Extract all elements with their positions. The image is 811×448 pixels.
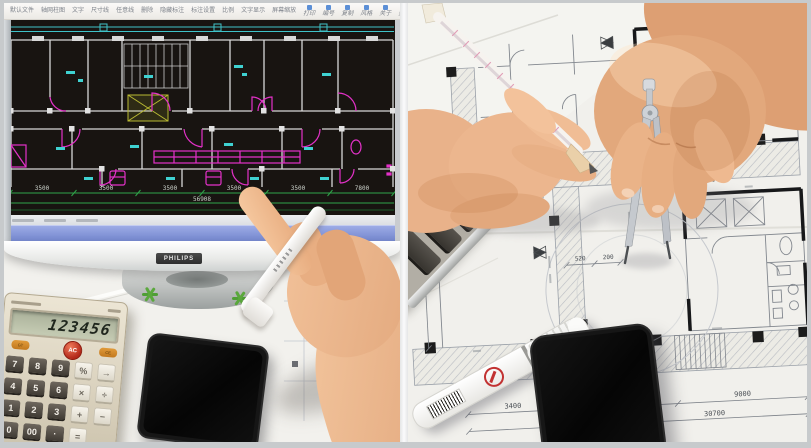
cad-menu-item: 文字显示 (241, 8, 265, 14)
phone-screen (535, 329, 661, 442)
cad-menu-item: 标注设置 (191, 8, 215, 14)
calculator-keypad: 7 8 9 % → 4 5 6 × ÷ 1 2 3 + − 0 00 · = (4, 355, 116, 442)
calculator-key: → (97, 363, 117, 383)
calculator: 123456 GT AC CE 7 8 9 % → 4 5 6 × ÷ 1 2 … (4, 292, 129, 442)
right-photo-blueprint-desk: 3400 9000 30700 520 200 7 8 (408, 3, 807, 442)
toolbar-icon (364, 5, 369, 10)
toolbar-icon (383, 5, 388, 10)
dim-total-label: 56908 (193, 196, 211, 203)
smartphone (528, 322, 667, 442)
cad-menu-item: 轴网柱图 (41, 8, 65, 14)
calculator-key-ce: CE (99, 347, 118, 358)
calculator-key: − (93, 407, 113, 427)
pointing-hand (232, 171, 400, 442)
elevator-shaft (128, 95, 168, 121)
dim-label: 520 (575, 255, 587, 263)
calculator-key: 3 (47, 403, 66, 422)
left-photo-cad-workstation: 默认文件 轴网柱图 文字 尺寸线 任意线 删除 隐藏标注 标注设置 比例 文字显… (4, 3, 400, 442)
monitor-left-edge (4, 19, 11, 241)
cad-menu-item-label: 资料 (398, 11, 400, 17)
calculator-key: 00 (22, 423, 41, 442)
cad-menu-item: 资料 (398, 5, 400, 17)
calculator-key: · (45, 425, 64, 442)
calculator-key: 0 (4, 421, 19, 440)
photo-divider (400, 3, 408, 442)
dim-total-label: 30700 (704, 409, 725, 418)
calculator-key-gt: GT (11, 340, 30, 351)
calculator-key: 8 (28, 357, 47, 376)
calculator-key: = (68, 427, 88, 442)
cad-menu-item: 打印 (303, 5, 315, 17)
calculator-key: 7 (5, 355, 24, 374)
calculator-key: 1 (4, 399, 21, 418)
toolbar-icon (307, 5, 312, 10)
cad-menu-item-label: 编号 (322, 11, 334, 17)
cad-menu-item: 风格 (360, 5, 372, 17)
toolbar-icon (326, 5, 331, 10)
cad-menu-item: 关于 (379, 5, 391, 17)
cad-menu-item: 复制 (341, 5, 353, 17)
calculator-key: × (72, 383, 92, 403)
plant-leaves (142, 293, 158, 296)
cad-menu-item-label: 打印 (303, 11, 315, 17)
calculator-key: 4 (4, 377, 23, 396)
philips-logo: PHILIPS (156, 253, 202, 264)
cad-menu-item: 尺寸线 (91, 8, 109, 14)
calculator-key-ac: AC (62, 340, 83, 361)
calculator-key: + (70, 405, 90, 425)
cad-menu-item-label: 关于 (379, 11, 391, 17)
calculator-key: 2 (24, 401, 43, 420)
calculator-key: 5 (26, 379, 45, 398)
cad-menu-bar: 默认文件 轴网柱图 文字 尺寸线 任意线 删除 隐藏标注 标注设置 比例 文字显… (4, 3, 400, 20)
photo-collage: 默认文件 轴网柱图 文字 尺寸线 任意线 删除 隐藏标注 标注设置 比例 文字显… (0, 0, 811, 448)
cad-menu-item: 默认文件 (10, 8, 34, 14)
cad-menu-item: 文字 (72, 8, 84, 14)
calculator-key: ÷ (95, 385, 115, 405)
cad-menu-item: 编号 (322, 5, 334, 17)
calculator-key: % (74, 361, 94, 381)
cad-menu-item-label: 复制 (341, 11, 353, 17)
calculator-display-value: 123456 (46, 315, 112, 338)
cad-menu-item: 比例 (222, 8, 234, 14)
cad-menu-item: 删除 (141, 8, 153, 14)
dim-label: 3500 (35, 185, 50, 192)
toolbar-icon (345, 5, 350, 10)
cad-menu-item: 屏幕缩放 (272, 8, 296, 14)
calculator-key: 6 (49, 381, 68, 400)
dim-label: 3500 (99, 185, 114, 192)
dim-label: 3400 (504, 402, 521, 411)
calculator-key: 9 (51, 359, 70, 378)
cad-menu-item: 任意线 (116, 8, 134, 14)
dim-label: 200 (603, 254, 615, 262)
staircase (124, 44, 188, 88)
cad-menu-item-label: 风格 (360, 11, 372, 17)
brand-stamp-icon (480, 363, 507, 390)
dim-label: 9000 (734, 390, 751, 399)
dim-label: 3500 (163, 185, 178, 192)
cad-menu-item: 隐藏标注 (160, 8, 184, 14)
